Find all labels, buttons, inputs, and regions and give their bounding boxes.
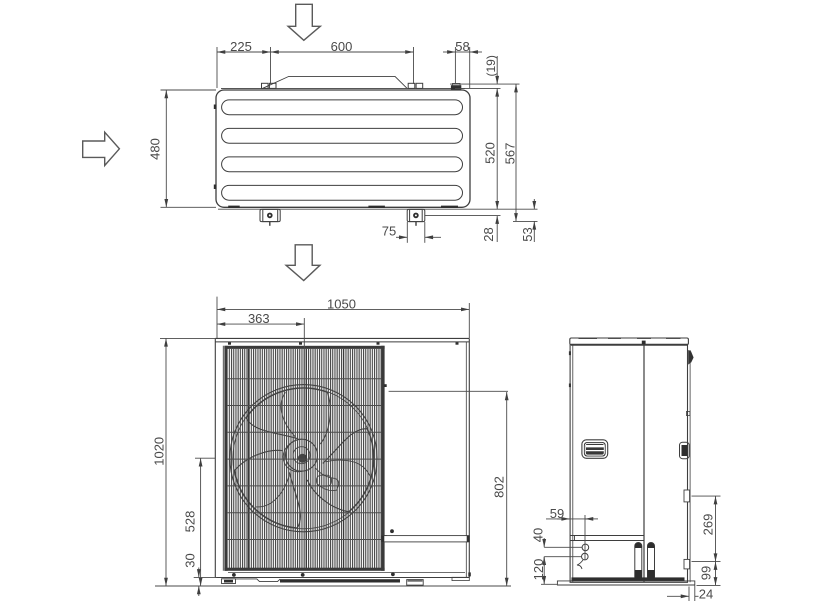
svg-text:802: 802	[492, 476, 507, 498]
svg-text:(19): (19)	[484, 55, 498, 76]
svg-text:30: 30	[183, 553, 198, 567]
svg-text:40: 40	[531, 528, 546, 542]
svg-text:225: 225	[230, 39, 252, 54]
svg-text:58: 58	[455, 39, 469, 54]
svg-text:363: 363	[248, 311, 270, 326]
svg-text:28: 28	[481, 227, 496, 241]
svg-text:480: 480	[148, 138, 163, 160]
svg-text:1050: 1050	[327, 297, 356, 312]
svg-text:59: 59	[550, 506, 564, 521]
svg-text:520: 520	[483, 142, 498, 164]
svg-text:269: 269	[701, 514, 716, 536]
svg-text:528: 528	[183, 511, 198, 533]
svg-text:24: 24	[699, 587, 713, 602]
svg-text:75: 75	[382, 224, 396, 239]
svg-text:99: 99	[699, 566, 714, 580]
svg-text:600: 600	[331, 39, 353, 54]
svg-text:120: 120	[531, 559, 546, 581]
svg-text:53: 53	[520, 227, 535, 241]
svg-text:1020: 1020	[152, 437, 167, 466]
svg-text:567: 567	[503, 143, 518, 165]
